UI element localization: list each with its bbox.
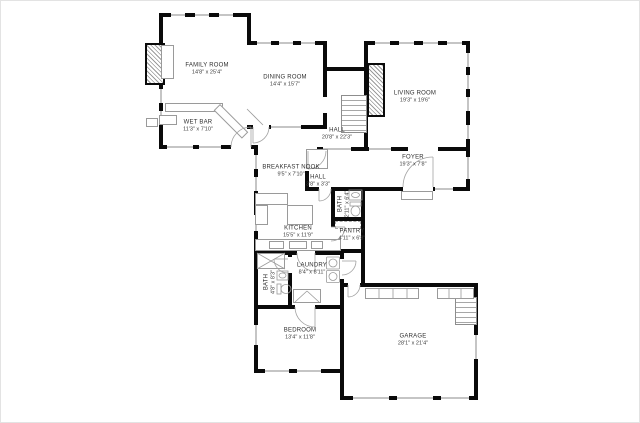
dining-corner-cabinet — [247, 109, 263, 125]
garage-cabinets — [437, 288, 474, 299]
window — [375, 41, 390, 45]
room-dims: 8'4" x 8'11" — [297, 269, 327, 276]
room-label-bedroom: BEDROOM 13'4" x 11'8" — [284, 327, 316, 341]
window — [254, 155, 258, 169]
wall-segment — [288, 251, 292, 257]
window — [447, 41, 462, 45]
door-arc-dining — [253, 127, 269, 143]
porch-step — [401, 191, 433, 200]
room-label-wet-bar: WET BAR 11'3" x 7'10" — [183, 119, 213, 133]
window — [423, 41, 438, 45]
wall-segment — [340, 279, 344, 400]
room-label-laundry: LAUNDRY 8'4" x 8'11" — [297, 262, 327, 276]
room-label-foyer: FOYER 19'3" x 7'8" — [399, 154, 426, 168]
room-dims: 4'11" x 6'8" — [339, 235, 366, 242]
window — [279, 41, 293, 45]
window — [219, 13, 233, 17]
wet-bar-cabinet — [146, 118, 158, 127]
room-dims: 14'4" x 15'7" — [263, 81, 307, 88]
room-dims: 19'3" x 19'6" — [394, 97, 436, 104]
room-name: GARAGE — [398, 333, 428, 340]
room-name: WET BAR — [183, 119, 213, 126]
room-name: HALL — [306, 174, 330, 181]
room-name: PANTRY — [339, 228, 366, 235]
window — [257, 41, 271, 45]
room-name: BATH — [263, 270, 270, 294]
window — [435, 187, 453, 191]
window — [301, 41, 315, 45]
window — [369, 147, 391, 151]
wall-segment — [340, 283, 348, 287]
bath-upper-toilet — [350, 202, 361, 216]
room-label-hall: HALL 20'8" x 22'3" — [322, 127, 352, 141]
wall-segment — [365, 187, 403, 191]
window — [466, 125, 470, 139]
laundry-closet — [293, 289, 321, 303]
window — [466, 157, 470, 179]
room-dims: 28'1" x 21'4" — [398, 340, 428, 347]
window — [474, 335, 478, 359]
fireplace-hearth — [161, 45, 174, 79]
room-dims: 2'11" x 6'4" — [344, 191, 351, 218]
room-label-dining-room: DINING ROOM 14'4" x 15'7" — [263, 74, 307, 88]
window — [167, 145, 193, 149]
room-dims: 13'4" x 11'8" — [284, 334, 316, 341]
fireplace-living — [367, 63, 385, 117]
wall-segment — [323, 67, 368, 71]
window — [171, 13, 185, 17]
kitchen-stove — [269, 241, 284, 249]
wall-segment — [288, 273, 292, 305]
window — [297, 369, 321, 373]
window — [466, 53, 470, 67]
room-label-living-room: LIVING ROOM 19'3" x 19'6" — [394, 90, 436, 104]
garage-cabinets — [365, 288, 419, 299]
bath-lower-sink — [277, 271, 288, 280]
kitchen-fridge — [255, 205, 268, 225]
window — [466, 75, 470, 89]
wall-segment — [315, 251, 344, 255]
room-label-bath-lower: BATH 4'8" x 8'3" — [263, 270, 277, 294]
room-dims: 15'5" x 11'9" — [283, 232, 313, 239]
room-label-kitchen: KITCHEN 15'5" x 11'9" — [283, 225, 313, 239]
window — [159, 89, 163, 103]
wall-segment — [323, 71, 327, 97]
window — [195, 13, 209, 17]
room-dims: 11'3" x 7'10" — [183, 126, 213, 133]
door-arc-corridor — [342, 261, 356, 275]
wall-segment — [360, 283, 478, 287]
window — [254, 325, 258, 345]
shower — [257, 253, 285, 269]
window — [271, 125, 301, 129]
kitchen-counter — [255, 193, 288, 205]
window — [466, 97, 470, 111]
garage-door — [397, 396, 433, 400]
room-dims: 4'8" x 8'3" — [270, 270, 277, 294]
washer — [327, 257, 340, 269]
window — [399, 41, 414, 45]
window — [199, 145, 221, 149]
room-name: BREAKFAST NOOK — [262, 164, 319, 171]
room-label-family-room: FAMILY ROOM 14'8" x 25'4" — [185, 62, 228, 76]
room-label-bath-upper: BATH 2'11" x 6'4" — [337, 191, 351, 218]
door-arc-garage — [348, 285, 360, 297]
kitchen-island — [287, 205, 313, 225]
window — [265, 369, 289, 373]
wet-bar-counter-diagonal — [214, 104, 249, 139]
room-label-hall-small: HALL 3'8" x 3'3" — [306, 174, 330, 188]
window — [254, 177, 258, 191]
room-dims: 20'8" x 22'3" — [322, 134, 352, 141]
kitchen-sink — [289, 241, 307, 249]
garage-door — [441, 396, 469, 400]
room-name: FOYER — [399, 154, 426, 161]
wall-segment — [254, 305, 295, 309]
wet-bar-sink — [159, 115, 177, 125]
door-arc-bath-upper — [319, 189, 331, 201]
room-name: HALL — [322, 127, 352, 134]
room-name: DINING ROOM — [263, 74, 307, 81]
room-name: KITCHEN — [283, 225, 313, 232]
room-label-garage: GARAGE 28'1" x 21'4" — [398, 333, 428, 347]
floor-plan: FAMILY ROOM 14'8" x 25'4" DINING ROOM 14… — [0, 0, 640, 423]
wall-segment — [315, 305, 344, 309]
stairs-garage — [455, 297, 477, 325]
dryer — [327, 271, 340, 283]
fixtures-overlay — [1, 1, 640, 423]
room-name: BATH — [337, 191, 344, 218]
room-dims: 14'8" x 25'4" — [185, 69, 228, 76]
room-name: LAUNDRY — [297, 262, 327, 269]
room-name: FAMILY ROOM — [185, 62, 228, 69]
garage-door — [353, 396, 389, 400]
room-name: BEDROOM — [284, 327, 316, 334]
room-name: LIVING ROOM — [394, 90, 436, 97]
room-label-pantry: PANTRY 4'11" x 6'8" — [339, 228, 366, 242]
room-dims: 3'8" x 3'3" — [306, 181, 330, 188]
kitchen-dishwasher — [311, 241, 323, 249]
door-arc-bedroom — [295, 307, 315, 327]
room-dims: 19'3" x 7'8" — [399, 161, 426, 168]
wall-segment — [247, 125, 253, 129]
